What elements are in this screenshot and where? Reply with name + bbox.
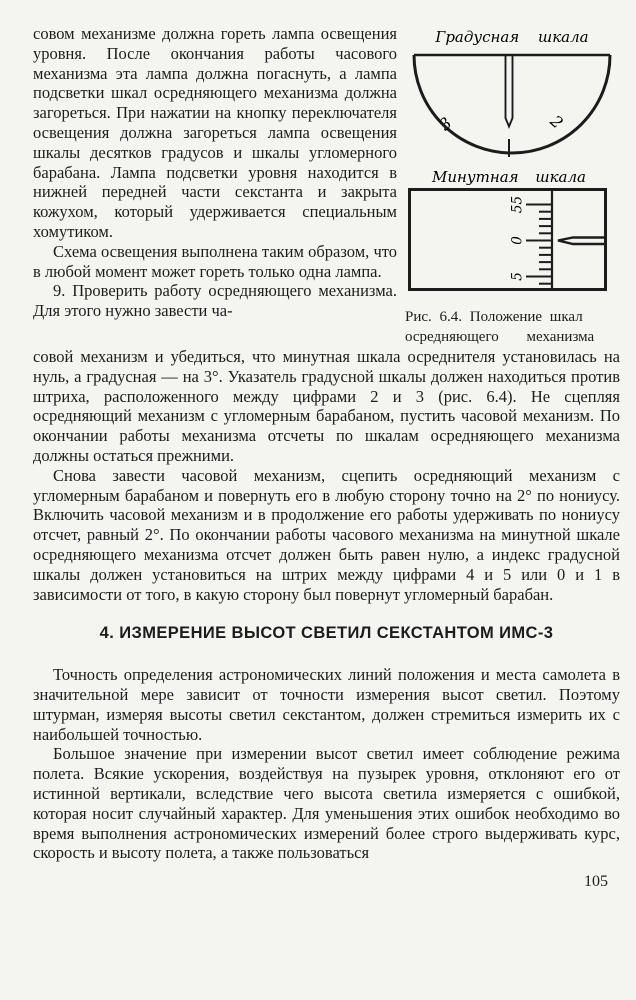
minute-scale-figure: Минутная шкала 55 [405,170,620,292]
left-text-column: совом механизме должна гореть лампа осве… [33,24,397,347]
figure-column: Градусная шкала 3 2 Минутная шкала [405,24,620,347]
degree-scale-pointer [506,56,513,127]
paragraph-flight-mode: Большое значение при измерении высот све… [33,744,620,863]
page-number: 105 [33,872,608,892]
paragraph-accuracy: Точность определения астрономических лин… [33,665,620,744]
full-width-section: совой механизм и убедиться, что минутная… [33,347,620,863]
degree-scale-figure: Градусная шкала 3 2 [405,24,620,158]
zero-index-arrow [558,238,605,245]
degree-scale-numeral-2: 2 [546,111,567,133]
figure-caption-line-1: Рис. 6.4. Положение шкал [405,307,617,327]
section-heading: 4. ИЗМЕРЕНИЕ ВЫСОТ СВЕТИЛ СЕКСТАНТОМ ИМС… [33,624,620,644]
paragraph-lighting-scheme: Схема освещения выполнена таким образом,… [33,242,397,282]
paragraph-lamp-illumination: совом механизме должна гореть лампа осве… [33,24,397,242]
book-page: совом механизме должна гореть лампа осве… [0,0,636,1000]
minute-tick-label-5: 5 [510,272,526,281]
paragraph-check-mechanism-start: 9. Проверить работу осредняющего механиз… [33,281,397,321]
two-column-section: совом механизме должна гореть лампа осве… [33,24,620,347]
paragraph-wind-again: Снова завести часовой механизм, сцепить … [33,466,620,605]
paragraph-check-mechanism-continued: совой механизм и убедиться, что минутная… [33,347,620,466]
minute-scale-ticks [526,205,552,284]
degree-scale-label: Градусная шкала [434,28,588,46]
minute-scale-label: Минутная шкала [431,170,586,186]
minute-scale-window [410,190,606,290]
minute-tick-label-55: 55 [510,196,526,213]
figure-caption: Рис. 6.4. Положение шкал осредняющего ме… [405,307,617,347]
minute-tick-label-0: 0 [510,236,526,245]
figure-caption-line-2: осредняющего механизма [405,327,617,347]
